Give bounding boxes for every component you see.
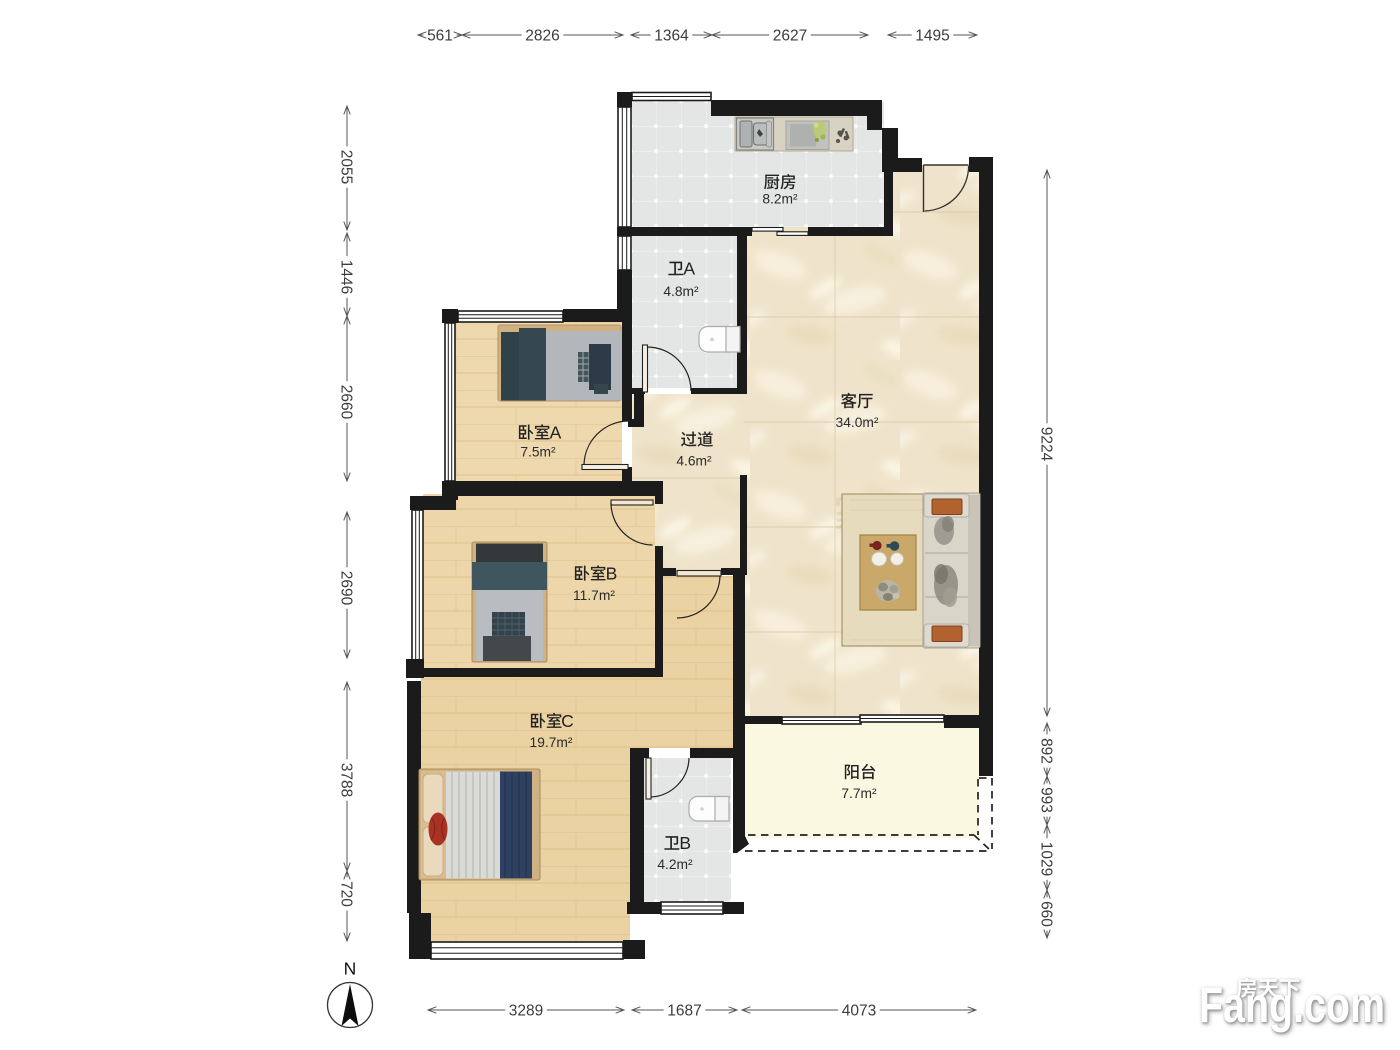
svg-text:34.0m²: 34.0m²: [836, 415, 879, 430]
svg-text:993: 993: [1038, 787, 1055, 813]
svg-text:9224: 9224: [1038, 427, 1055, 462]
svg-text:4.8m²: 4.8m²: [663, 284, 699, 299]
svg-text:4073: 4073: [842, 1002, 876, 1019]
svg-text:A: A: [683, 258, 695, 278]
svg-text:720: 720: [338, 881, 355, 907]
svg-text:1446: 1446: [338, 260, 355, 294]
svg-text:3289: 3289: [509, 1002, 543, 1019]
svg-text:1687: 1687: [667, 1002, 701, 1019]
svg-text:B: B: [679, 833, 691, 853]
svg-text:1495: 1495: [915, 27, 949, 44]
svg-text:4.6m²: 4.6m²: [676, 453, 712, 468]
svg-text:N: N: [344, 959, 357, 979]
svg-text:4.2m²: 4.2m²: [657, 857, 693, 872]
svg-text:A: A: [550, 422, 562, 442]
svg-text:892: 892: [1038, 738, 1055, 764]
svg-text:8.2m²: 8.2m²: [762, 191, 798, 206]
svg-text:11.7m²: 11.7m²: [573, 588, 615, 603]
svg-text:1029: 1029: [1038, 842, 1055, 876]
svg-text:660: 660: [1038, 901, 1055, 927]
svg-text:561: 561: [427, 27, 453, 44]
svg-text:B: B: [606, 563, 618, 583]
svg-text:19.7m²: 19.7m²: [530, 735, 573, 750]
svg-text:Fang.com: Fang.com: [1199, 977, 1385, 1033]
svg-text:2627: 2627: [773, 27, 807, 44]
svg-text:1364: 1364: [654, 27, 689, 44]
svg-text:7.7m²: 7.7m²: [841, 786, 877, 801]
svg-text:7.5m²: 7.5m²: [520, 444, 556, 459]
svg-text:2660: 2660: [338, 385, 355, 420]
svg-text:2826: 2826: [525, 27, 559, 44]
svg-text:2690: 2690: [338, 571, 355, 606]
svg-text:2055: 2055: [338, 150, 355, 184]
svg-text:3788: 3788: [338, 763, 355, 797]
svg-text:C: C: [561, 711, 574, 731]
